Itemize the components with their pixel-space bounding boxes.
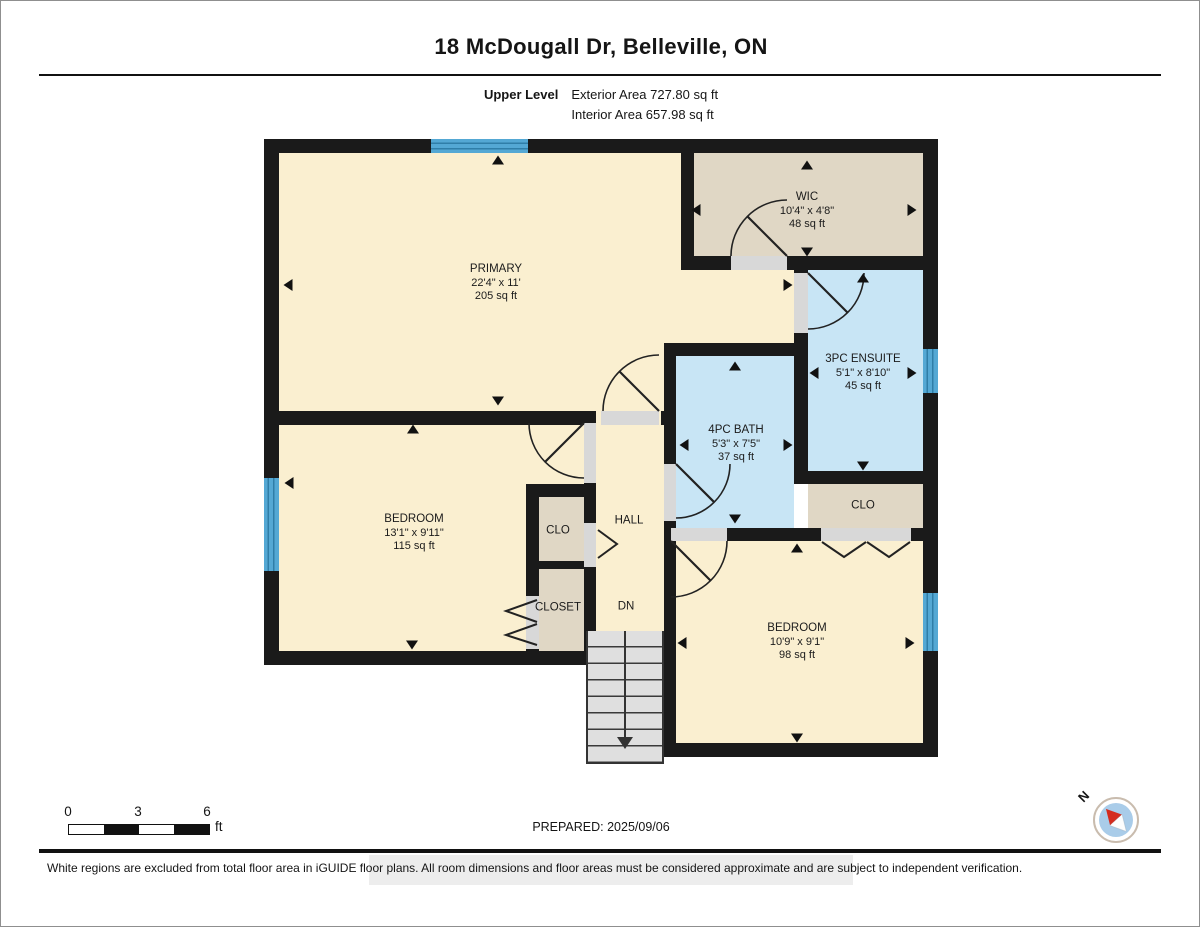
wall [664,343,796,356]
room-label-wic: WIC10'4" x 4'8"48 sq ft [780,191,834,232]
wall [264,139,938,153]
floor-plan: PRIMARY22'4" x 11'205 sq ft WIC10'4" x 4… [264,139,938,767]
direction-arrow [692,204,701,216]
direction-arrow [791,544,803,553]
direction-arrow [908,204,917,216]
room-label-clo-ensuite: CLO [851,499,875,513]
door-swing [676,464,730,518]
stair-rail-line [624,631,626,739]
wall [794,471,938,484]
compass-icon: N [1077,785,1141,849]
scale-tick: 0 [64,804,72,819]
level-name: Upper Level [484,85,558,125]
bifold-door [597,529,619,559]
bifold-door [500,599,538,646]
direction-arrow [801,248,813,257]
wall [923,139,938,757]
scale-bar [68,824,210,835]
door-opening [584,523,596,567]
direction-arrow [284,279,293,291]
direction-arrow [784,439,793,451]
direction-arrow [908,367,917,379]
door-swing [808,273,864,329]
direction-arrow [492,156,504,165]
room-label-hall: HALL [615,514,644,528]
direction-arrow [492,397,504,406]
direction-arrow [729,362,741,371]
door-opening [601,411,659,425]
bifold-door [821,541,911,559]
door-swing [529,423,584,478]
scale-segment [69,825,104,834]
door-opening [731,256,787,270]
window [431,139,528,153]
door-opening [584,423,596,483]
direction-arrow [906,637,915,649]
direction-arrow [784,279,793,291]
direction-arrow [678,637,687,649]
scale-unit: ft [215,819,223,834]
room-label-clo-bedroom: CLO [546,524,570,538]
room-label-ensuite: 3PC ENSUITE5'1" x 8'10"45 sq ft [825,353,900,394]
room-label-bedroom-right: BEDROOM10'9" x 9'1"98 sq ft [767,622,826,663]
wall [264,651,596,665]
wall [664,743,938,757]
prepared-date: PREPARED: 2025/09/06 [461,820,741,834]
room-label-bath: 4PC BATH5'3" x 7'5"37 sq ft [708,424,763,465]
door-swing [603,355,659,411]
room-label-closet: CLOSET [535,601,581,615]
direction-arrow [680,439,689,451]
scale-tick: 6 [203,804,211,819]
direction-arrow [801,161,813,170]
wall [661,411,676,425]
footer-divider [39,849,1161,853]
room-label-bedroom-left: BEDROOM13'1" x 9'11"115 sq ft [384,513,444,554]
scale-segment [139,825,174,834]
door-swing [731,200,787,256]
window [264,478,279,571]
direction-arrow [857,462,869,471]
interior-area: Interior Area 657.98 sq ft [571,105,718,125]
disclaimer-text: White regions are excluded from total fl… [47,861,1162,875]
direction-arrow [729,515,741,524]
window [923,349,938,393]
door-opening [821,528,911,541]
wall [264,139,279,665]
door-opening [671,528,727,541]
door-swing [671,541,727,597]
stairs-dn-label: DN [618,600,635,614]
compass-north-label: N [1075,788,1092,805]
direction-arrow [285,477,294,489]
door-opening [794,273,808,333]
exterior-area: Exterior Area 727.80 sq ft [571,85,718,105]
down-arrow-icon [617,737,633,749]
direction-arrow [406,641,418,650]
direction-arrow [810,367,819,379]
scale-segment [104,825,139,834]
level-info: Upper Level Exterior Area 727.80 sq ft I… [1,85,1200,125]
door-opening [664,464,676,521]
window [923,593,938,651]
floor-plan-page: 18 McDougall Dr, Belleville, ON Upper Le… [0,0,1200,927]
direction-arrow [407,425,419,434]
compass-ring [1093,797,1139,843]
title-divider [39,74,1161,76]
scale-tick: 3 [134,804,142,819]
staircase [586,631,664,764]
room-label-primary: PRIMARY22'4" x 11'205 sq ft [470,263,522,304]
scale-segment [174,825,209,834]
direction-arrow [791,734,803,743]
page-title: 18 McDougall Dr, Belleville, ON [1,34,1200,60]
direction-arrow [857,274,869,283]
